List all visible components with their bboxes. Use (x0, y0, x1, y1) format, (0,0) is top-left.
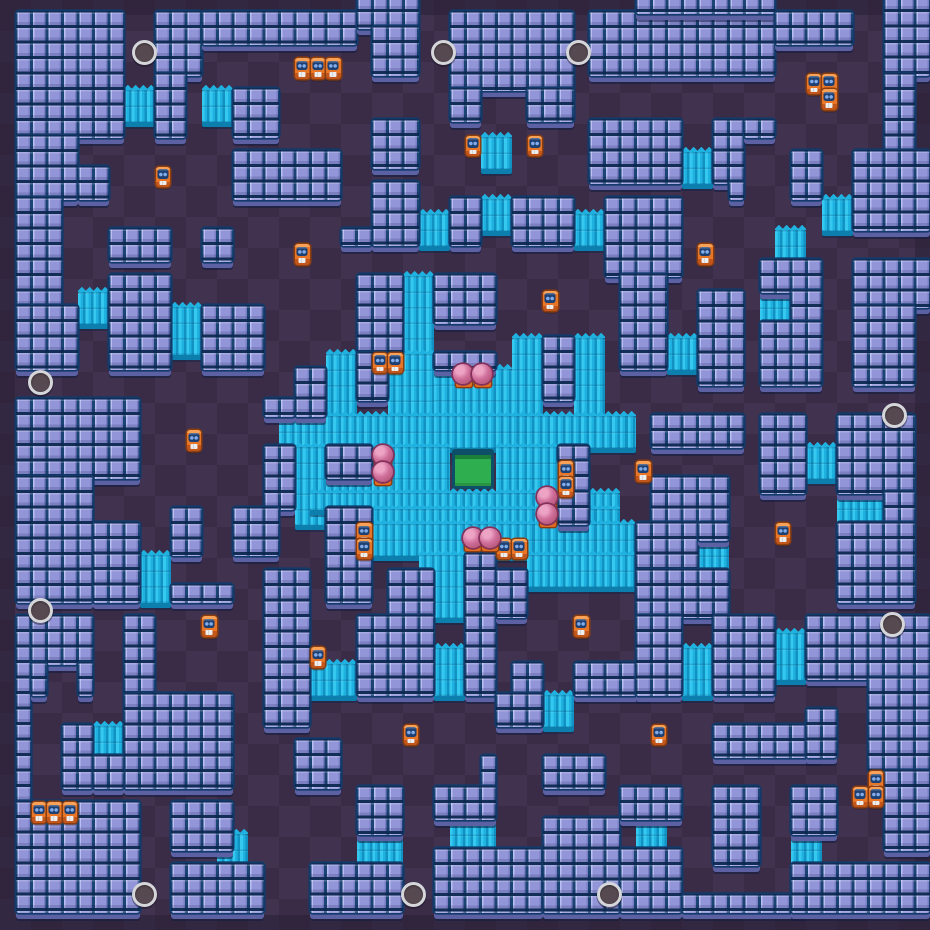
crate-teeth-icon (51, 816, 58, 821)
loot-crate (822, 89, 837, 110)
robot-face-icon (545, 293, 556, 303)
wall-block (295, 739, 342, 789)
wall-block (109, 274, 171, 370)
energy-ball (480, 528, 501, 552)
wall-block (233, 88, 280, 138)
crate-teeth-icon (655, 739, 662, 744)
crate-teeth-icon (314, 72, 321, 77)
robot-face-icon (467, 138, 478, 148)
wall-block (372, 119, 419, 169)
bush-patch (326, 354, 357, 417)
wall-block (171, 801, 233, 851)
wall-block (78, 166, 109, 200)
robot-face-icon (638, 464, 649, 474)
wall-block (884, 770, 930, 851)
showdown-map (0, 0, 930, 930)
wall-block (93, 522, 140, 603)
wall-block (62, 724, 93, 789)
wall-block (543, 755, 605, 789)
wall-block (589, 11, 775, 76)
wall-block (682, 894, 806, 913)
loot-crate (295, 244, 310, 265)
bush-patch (202, 90, 233, 122)
wall-block (868, 677, 930, 773)
wall-block (760, 414, 807, 495)
wall-block (729, 181, 745, 200)
crate-teeth-icon (702, 258, 709, 263)
robot-face-icon (359, 541, 370, 551)
wall-block (341, 228, 372, 247)
ball-orb (537, 504, 557, 524)
wall-block (124, 615, 155, 696)
wall-block (295, 367, 326, 417)
wall-block (651, 476, 729, 526)
bush-patch (279, 416, 636, 448)
robot-face-icon (188, 433, 199, 443)
robot-face-icon (328, 61, 339, 71)
bush-patch (760, 292, 791, 324)
wall-block (202, 305, 264, 370)
wall-block (357, 786, 404, 836)
bush-patch (403, 276, 434, 355)
wall-block (853, 259, 930, 309)
wall-block (884, 491, 915, 525)
crate-teeth-icon (299, 72, 306, 77)
loot-crate (388, 353, 403, 374)
energy-ball (373, 462, 394, 486)
wall-block (636, 569, 729, 619)
loot-crate (528, 136, 543, 157)
robot-face-icon (870, 789, 881, 799)
wall-block (884, 73, 915, 154)
wall-block (713, 615, 775, 696)
crate-teeth-icon (779, 537, 786, 542)
bush-patch (419, 214, 450, 246)
wall-block (605, 197, 683, 278)
loot-crate (202, 616, 217, 637)
wall-block (636, 522, 698, 572)
bush-patch (806, 447, 837, 479)
crate-teeth-icon (190, 444, 197, 449)
bush-patch (574, 338, 605, 417)
robot-face-icon (297, 61, 308, 71)
wall-block (264, 445, 295, 510)
robot-face-icon (33, 805, 44, 815)
robot-face-icon (529, 138, 540, 148)
wall-block (791, 863, 930, 913)
wall-block (264, 569, 311, 727)
wall-block (233, 507, 280, 557)
crate-teeth-icon (531, 150, 538, 155)
wall-block (636, 615, 683, 696)
loot-crate (295, 58, 310, 79)
crate-teeth-icon (810, 88, 817, 93)
wall-block (884, 0, 930, 76)
bush-patch (78, 292, 109, 324)
wall-block (450, 11, 574, 92)
wall-block (465, 553, 496, 696)
loot-crate (326, 58, 341, 79)
energy-ball (537, 504, 558, 528)
loot-crate (357, 539, 372, 560)
crate-teeth-icon (314, 661, 321, 666)
robot-face-icon (64, 805, 75, 815)
loot-crate (311, 647, 326, 668)
loot-crate (187, 430, 202, 451)
loot-crate (156, 167, 171, 188)
bush-patch (171, 307, 202, 355)
bush-patch (527, 555, 636, 587)
spawn-point (597, 882, 622, 907)
energy-ball (472, 364, 493, 388)
wall-block (853, 305, 915, 386)
robot-face-icon (514, 541, 525, 551)
loot-crate (698, 244, 713, 265)
bush-patch (93, 726, 124, 758)
spawn-point (132, 40, 157, 65)
robot-face-icon (777, 526, 788, 536)
wall-block (698, 522, 729, 541)
wall-block (791, 290, 822, 324)
bush-patch (310, 664, 357, 696)
wall-block (372, 26, 419, 76)
wall-block (171, 584, 233, 603)
robot-face-icon (576, 619, 587, 629)
wall-block (155, 11, 202, 76)
bush-patch (295, 447, 326, 526)
wall-block (202, 11, 357, 45)
bush-patch (543, 695, 574, 727)
spawn-point (401, 882, 426, 907)
wall-block (171, 863, 264, 913)
bush-patch (481, 199, 512, 231)
wall-block (388, 569, 435, 619)
robot-face-icon (700, 247, 711, 257)
bush-patch (822, 199, 853, 231)
spawn-point (431, 40, 456, 65)
wall-block (31, 662, 47, 696)
crate-teeth-icon (159, 181, 166, 186)
crate-teeth-icon (361, 553, 368, 558)
crate-teeth-icon (857, 801, 864, 806)
robot-face-icon (824, 92, 835, 102)
wall-block (109, 228, 171, 262)
robot-face-icon (359, 526, 370, 536)
bush-patch (140, 555, 171, 603)
robot-face-icon (157, 169, 168, 179)
map-field (0, 0, 930, 930)
wall-block (16, 197, 63, 309)
wall-block (16, 11, 125, 138)
loot-crate (869, 787, 884, 808)
wall-block (574, 460, 590, 494)
wall-block (233, 150, 342, 200)
wall-block (620, 848, 682, 913)
crate-teeth-icon (392, 367, 399, 372)
wall-block (713, 119, 744, 184)
bush-patch (667, 338, 698, 370)
wall-block (78, 662, 94, 696)
bush-patch (837, 493, 884, 525)
robot-face-icon (560, 464, 571, 474)
wall-block (620, 274, 667, 370)
loot-crate (776, 523, 791, 544)
crate-teeth-icon (330, 72, 337, 77)
wall-block (496, 693, 543, 727)
crate-teeth-icon (469, 150, 476, 155)
wall-block (155, 73, 186, 138)
wall-block (512, 197, 574, 247)
loot-crate (311, 58, 326, 79)
robot-face-icon (312, 650, 323, 660)
bush-patch (124, 90, 155, 122)
wall-block (481, 755, 497, 789)
robot-face-icon (808, 76, 819, 86)
spawn-point (28, 370, 53, 395)
crate-teeth-icon (500, 553, 507, 558)
spawn-point (566, 40, 591, 65)
wall-block (760, 259, 822, 293)
robot-face-icon (824, 76, 835, 86)
crate-teeth-icon (66, 816, 73, 821)
bush-patch (450, 819, 497, 851)
bush-patch (682, 648, 713, 696)
loot-crate (512, 539, 527, 560)
bush-patch (636, 819, 667, 851)
loot-crate (652, 725, 667, 746)
wall-block (853, 150, 930, 231)
loot-crate (574, 616, 589, 637)
wall-block (357, 0, 419, 29)
crate-teeth-icon (562, 491, 569, 496)
crate-teeth-icon (578, 630, 585, 635)
wall-block (310, 863, 403, 913)
robot-face-icon (855, 789, 866, 799)
spawn-point (28, 598, 53, 623)
robot-face-icon (390, 355, 401, 365)
crate-teeth-icon (407, 739, 414, 744)
gem-spawner (452, 449, 494, 489)
loot-crate (32, 802, 47, 823)
loot-crate (636, 461, 651, 482)
crate-teeth-icon (826, 103, 833, 108)
ball-orb (472, 364, 492, 384)
wall-block (264, 398, 295, 417)
loot-crate (404, 725, 419, 746)
bush-patch (357, 834, 404, 866)
crate-teeth-icon (376, 367, 383, 372)
wall-block (837, 414, 915, 495)
wall-block (527, 88, 574, 122)
wall-block (434, 274, 496, 324)
wall-block (372, 181, 419, 246)
robot-face-icon (312, 61, 323, 71)
crate-teeth-icon (640, 475, 647, 480)
wall-block (326, 445, 373, 479)
wall-block (543, 336, 574, 401)
bush-patch (682, 152, 713, 184)
wall-block (775, 11, 853, 45)
wall-block (496, 569, 527, 619)
wall-block (760, 321, 822, 386)
robot-face-icon (405, 727, 416, 737)
wall-block (450, 88, 481, 122)
bush-patch (512, 338, 543, 417)
robot-face-icon (870, 774, 881, 784)
loot-crate (807, 74, 822, 95)
wall-block (806, 708, 837, 758)
wall-block (651, 414, 744, 448)
wall-block (16, 398, 140, 479)
wall-block (713, 786, 760, 867)
crate-teeth-icon (547, 305, 554, 310)
wall-block (434, 786, 496, 820)
robot-face-icon (204, 619, 215, 629)
wall-block (16, 615, 32, 804)
bush-patch (481, 137, 512, 169)
robot-face-icon (297, 247, 308, 257)
bush-patch (791, 834, 822, 866)
loot-crate (559, 477, 574, 498)
spawn-point (132, 882, 157, 907)
spawn-point (882, 403, 907, 428)
wall-block (93, 755, 124, 789)
robot-face-icon (653, 727, 664, 737)
bush-patch (574, 214, 605, 246)
crate-teeth-icon (872, 801, 879, 806)
wall-block (357, 615, 435, 696)
wall-block (357, 274, 404, 355)
wall-block (806, 615, 930, 680)
wall-block (589, 119, 682, 184)
bush-patch (698, 540, 729, 572)
wall-block (16, 135, 78, 200)
wall-block (744, 119, 775, 138)
robot-face-icon (374, 355, 385, 365)
bush-patch (775, 633, 806, 681)
loot-crate (63, 802, 78, 823)
wall-block (791, 150, 822, 200)
crate-teeth-icon (516, 553, 523, 558)
loot-crate (853, 787, 868, 808)
wall-block (636, 0, 776, 14)
wall-block (124, 693, 233, 789)
wall-block (16, 305, 78, 370)
wall-block (698, 290, 745, 386)
wall-block (434, 848, 543, 913)
bush-patch (775, 230, 806, 262)
wall-block (450, 197, 481, 247)
wall-block (791, 786, 838, 836)
wall-block (512, 662, 543, 696)
wall-block (837, 522, 915, 603)
loot-crate (466, 136, 481, 157)
crate-teeth-icon (206, 630, 213, 635)
ball-orb (373, 462, 393, 482)
wall-block (202, 228, 233, 262)
crate-teeth-icon (35, 816, 42, 821)
loot-crate (373, 353, 388, 374)
robot-face-icon (49, 805, 60, 815)
wall-block (16, 476, 94, 603)
loot-crate (47, 802, 62, 823)
wall-block (620, 786, 682, 820)
wall-block (171, 507, 202, 557)
bush-patch (434, 648, 465, 696)
loot-crate (543, 291, 558, 312)
crate-teeth-icon (299, 258, 306, 263)
robot-face-icon (560, 479, 571, 489)
